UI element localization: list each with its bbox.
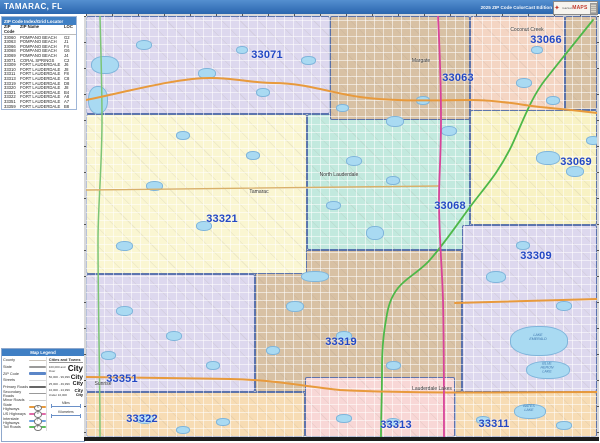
state-highway-north bbox=[86, 78, 597, 113]
edition-label: 2025 ZIP Code ColorCast Edition bbox=[481, 5, 552, 10]
zip-label-33063: 33063 bbox=[442, 72, 474, 84]
city-size-range: 25,000 - 49,999 bbox=[49, 382, 70, 386]
zip-label-33313: 33313 bbox=[380, 419, 412, 431]
cell-loc: B8 bbox=[64, 105, 76, 110]
grid-ticks-top bbox=[86, 14, 597, 16]
legend-item-label: ZIP Code bbox=[3, 372, 29, 376]
legend-line-sample bbox=[29, 397, 46, 403]
line-swatch bbox=[29, 360, 46, 362]
col-zip-name: ZIP Name bbox=[20, 25, 64, 34]
map-legend: Map Legend CountyStateZIP CodeStreetsPri… bbox=[1, 348, 85, 442]
zip-label-33069: 33069 bbox=[560, 156, 592, 168]
page-title: TAMARAC, FL bbox=[4, 2, 62, 11]
legend-line-sample: S bbox=[29, 404, 46, 410]
line-swatch bbox=[29, 380, 46, 381]
toll-road-turnpike bbox=[381, 20, 593, 437]
city-label: Sunrise bbox=[95, 381, 112, 387]
scale-bar: Kilometers bbox=[49, 410, 83, 416]
city-size-sample: City bbox=[76, 393, 83, 397]
map-bottom-border bbox=[84, 437, 599, 441]
legend-item: State bbox=[3, 364, 46, 371]
city-size-row: 10,000 - 24,999City bbox=[49, 388, 83, 393]
title-bar: TAMARAC, FL 2025 ZIP Code ColorCast Edit… bbox=[0, 0, 600, 14]
roads-layer bbox=[86, 16, 597, 437]
highway-shield-icon: T bbox=[34, 425, 42, 432]
city-label: Tamarac bbox=[249, 189, 268, 195]
scale-line bbox=[51, 415, 81, 416]
legend-item: Streets bbox=[3, 377, 46, 384]
legend-item-label: State Highways bbox=[3, 403, 29, 411]
legend-title: Map Legend bbox=[2, 349, 84, 356]
line-swatch bbox=[29, 372, 46, 375]
legend-item-label: Primary Roads bbox=[3, 385, 29, 389]
city-size-sample: City bbox=[68, 364, 83, 373]
city-size-sample: City bbox=[73, 381, 83, 387]
legend-item-label: Minor Roads bbox=[3, 398, 29, 402]
grid-ticks-left bbox=[84, 16, 86, 437]
zip-label-33068: 33068 bbox=[434, 200, 466, 212]
legend-item: Secondary Roads bbox=[3, 390, 46, 397]
zip-label-33319: 33319 bbox=[325, 336, 357, 348]
zip-label-33311: 33311 bbox=[479, 418, 510, 430]
legend-item-label: Toll Roads bbox=[3, 425, 29, 429]
legend-line-sample bbox=[29, 364, 46, 370]
legend-item-label: State bbox=[3, 365, 29, 369]
grid-ticks-right bbox=[597, 16, 599, 437]
legend-item-label: US Highways bbox=[3, 412, 29, 416]
toll-road-west bbox=[98, 16, 102, 437]
address-block-icon bbox=[590, 3, 598, 14]
state-highway-oakland bbox=[86, 377, 597, 393]
city-label: North Lauderdale bbox=[320, 172, 359, 178]
zip-label-33321: 33321 bbox=[206, 213, 238, 225]
zip-label-33309: 33309 bbox=[520, 250, 552, 262]
city-label: Lauderdale Lakes bbox=[412, 386, 452, 392]
zip-label-33322: 33322 bbox=[126, 413, 158, 425]
legend-line-sample bbox=[29, 384, 46, 390]
legend-line-sample: I bbox=[29, 418, 46, 424]
cities-header: Cities and Towns bbox=[49, 357, 83, 363]
cell-zip: 33359 bbox=[4, 105, 20, 110]
zip-index-header-row: ZIP Code ZIP Name LOC bbox=[2, 25, 76, 35]
legend-item-label: Secondary Roads bbox=[3, 390, 29, 398]
city-size-range: 100,000 and Over bbox=[49, 365, 68, 373]
scale-bar: Miles bbox=[49, 401, 83, 407]
city-size-range: 10,000 - 24,999 bbox=[49, 388, 70, 392]
city-label: Coconut Creek bbox=[510, 27, 543, 33]
zip-index-body: 33060POMPANO BEACHG233063POMPANO BEACHJ1… bbox=[2, 36, 76, 110]
legend-item: Interstate HighwaysI bbox=[3, 417, 46, 424]
logo-text: marketMAPS bbox=[562, 5, 588, 11]
legend-item: Toll RoadsT bbox=[3, 424, 46, 431]
city-size-row: 100,000 and OverCity bbox=[49, 364, 83, 373]
scale-label: Kilometers bbox=[49, 410, 83, 414]
legend-cities: Cities and Towns 100,000 and OverCity50,… bbox=[46, 357, 83, 431]
lake-label: LAKE EMERALD bbox=[529, 334, 546, 342]
city-size-range: 50,000 - 99,999 bbox=[49, 375, 70, 379]
scale-label: Miles bbox=[49, 401, 83, 405]
city-label: Margate bbox=[412, 58, 430, 64]
legend-item-label: County bbox=[3, 358, 29, 362]
legend-line-sample bbox=[29, 371, 46, 377]
zip-label-33066: 33066 bbox=[530, 34, 562, 46]
line-swatch bbox=[29, 400, 46, 401]
state-highway-east bbox=[455, 299, 597, 303]
cell-name: FORT LAUDERDALE bbox=[20, 105, 64, 110]
zip-code-map: 3307133063330663306933068333213330933319… bbox=[86, 16, 597, 437]
compass-icon: ✦ bbox=[554, 5, 560, 12]
line-swatch bbox=[29, 366, 46, 368]
scale-line bbox=[51, 406, 81, 407]
city-size-row: 25,000 - 49,999City bbox=[49, 381, 83, 387]
table-row: 33359FORT LAUDERDALEB8 bbox=[2, 105, 76, 110]
col-zip-code: ZIP Code bbox=[4, 25, 20, 34]
legend-line-sample: T bbox=[29, 424, 46, 430]
line-swatch bbox=[29, 393, 46, 394]
city-size-range: Under 10,000 bbox=[49, 393, 67, 397]
lake-label: BATES LAKE bbox=[523, 405, 535, 413]
publisher-logo: ✦ marketMAPS bbox=[553, 1, 598, 15]
line-swatch bbox=[29, 386, 46, 388]
city-size-row: 50,000 - 99,999City bbox=[49, 374, 83, 381]
col-loc: LOC bbox=[64, 25, 76, 34]
city-size-sample: City bbox=[71, 374, 83, 381]
city-size-row: Under 10,000City bbox=[49, 393, 83, 397]
left-panel: ZIP Code Index/Grid Locator ZIP Code ZIP… bbox=[0, 14, 86, 443]
legend-item: State HighwaysS bbox=[3, 404, 46, 411]
legend-item-label: Interstate Highways bbox=[3, 417, 29, 425]
legend-line-sample: U bbox=[29, 411, 46, 417]
zip-label-33071: 33071 bbox=[251, 49, 283, 61]
legend-line-items: CountyStateZIP CodeStreetsPrimary RoadsS… bbox=[3, 357, 46, 431]
zip-index-table: ZIP Code Index/Grid Locator ZIP Code ZIP… bbox=[1, 16, 77, 110]
legend-line-sample bbox=[29, 357, 46, 363]
lake-label: BLUE HERON LAKE bbox=[541, 362, 554, 373]
legend-line-sample bbox=[29, 391, 46, 397]
legend-item: ZIP Code bbox=[3, 370, 46, 377]
legend-line-sample bbox=[29, 377, 46, 383]
city-size-sample: City bbox=[74, 388, 83, 393]
legend-item-label: Streets bbox=[3, 378, 29, 382]
legend-item: County bbox=[3, 357, 46, 364]
